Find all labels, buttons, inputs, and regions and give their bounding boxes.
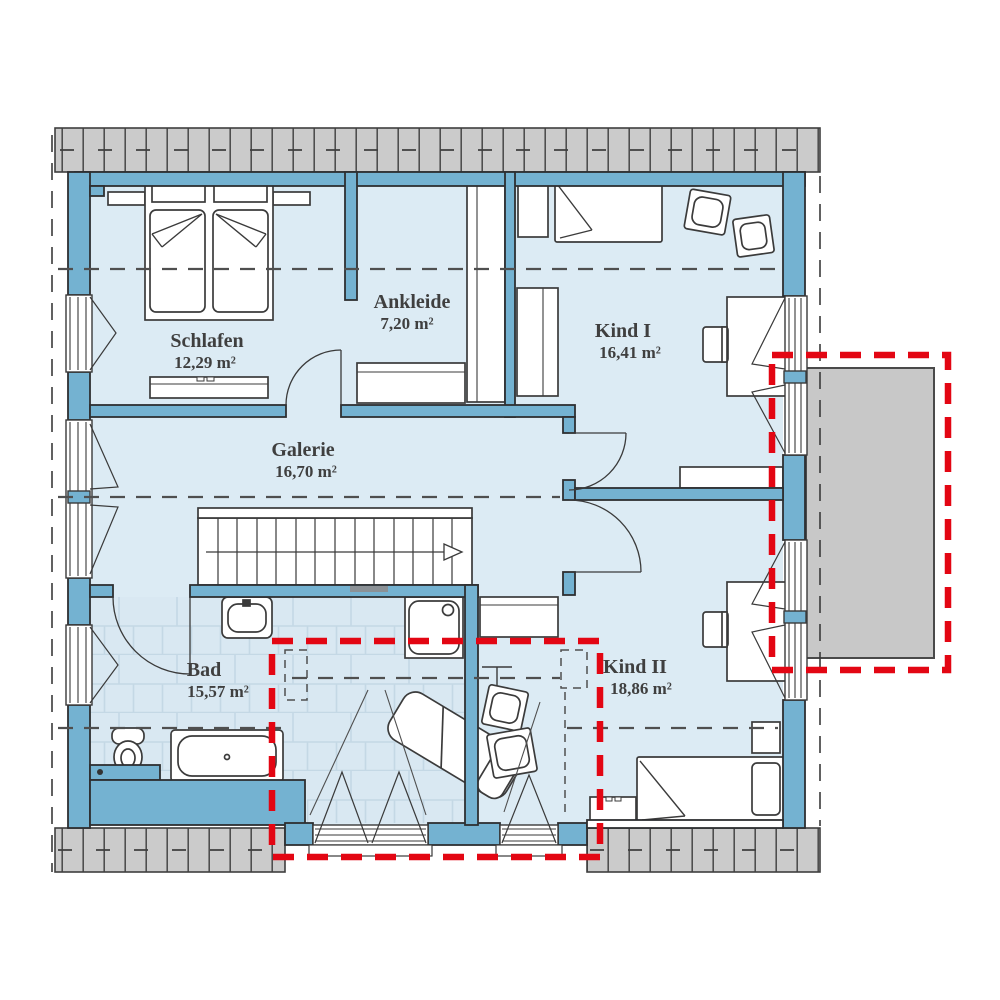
wall-bad-kind2 [465, 585, 478, 825]
wall-exterior-left [68, 172, 90, 295]
balcony-option-area [806, 368, 934, 658]
wall-exterior-top [75, 172, 805, 186]
wall-knee-bottom-right [587, 820, 783, 828]
wall-pier-corner [90, 186, 104, 196]
wall-exterior-left [68, 578, 90, 625]
floor-plan-drawing: Schlafen 12,29 m² Ankleide 7,20 m² Kind … [0, 0, 1000, 1000]
sideboard-icon [680, 467, 783, 488]
cabinet-icon [480, 597, 558, 637]
shower-icon [405, 597, 463, 658]
room-area-galerie: 16,70 m² [275, 462, 337, 481]
room-label-ankleide: Ankleide [374, 291, 451, 313]
window-mullion [784, 371, 806, 383]
single-bed-icon [637, 757, 785, 821]
wall-galerie-bad [190, 585, 478, 597]
nightstand-icon [273, 192, 310, 205]
room-area-kind2: 18,86 m² [610, 679, 672, 698]
room-label-kind2: Kind II [603, 656, 667, 678]
wall-dormer [285, 823, 313, 845]
sink-icon [222, 597, 272, 638]
wall-pier [563, 572, 575, 595]
room-label-schlafen: Schlafen [170, 330, 243, 352]
cushion-icon [487, 728, 538, 779]
wall-ankleide-galerie [341, 405, 575, 417]
wall-exterior-right [783, 700, 805, 828]
wall-kind1-kind2 [575, 488, 783, 500]
window-mullion [784, 611, 806, 623]
room-area-ankleide: 7,20 m² [380, 314, 433, 333]
nightstand-icon [108, 192, 145, 205]
wall-dormer [558, 823, 587, 845]
threshold [350, 586, 388, 592]
room-area-schlafen: 12,29 m² [174, 353, 236, 372]
wall-exterior-right [783, 172, 805, 296]
wall-exterior-left [68, 705, 90, 828]
wall-galerie-bad [90, 585, 113, 597]
cushion-icon [733, 215, 775, 258]
bathtub-icon [171, 730, 283, 782]
roof-hatch-band-top [55, 128, 820, 172]
room-label-bad: Bad [187, 659, 221, 681]
wall-schlafen-ankleide [345, 172, 357, 300]
wall-dormer [428, 823, 500, 845]
cushion-icon [684, 189, 731, 236]
chair-icon [703, 327, 728, 362]
drain-dot [97, 769, 103, 775]
nightstand-icon [752, 722, 780, 753]
wall-ankleide-kind1 [505, 172, 515, 417]
cushion-icon [481, 684, 528, 731]
mattress [213, 210, 268, 312]
wall-schlafen-galerie [90, 405, 286, 417]
wardrobe-icon [517, 288, 558, 396]
stairs [198, 508, 472, 585]
mattress [150, 210, 205, 312]
floor-plan-page: Schlafen 12,29 m² Ankleide 7,20 m² Kind … [0, 0, 1000, 1000]
wall-pier [563, 417, 575, 433]
room-label-galerie: Galerie [271, 439, 334, 461]
room-area-bad: 15,57 m² [187, 682, 249, 701]
wall-exterior-right [783, 455, 805, 540]
dresser-icon [150, 377, 268, 398]
room-label-kind1: Kind I [595, 320, 651, 342]
pillow [752, 763, 780, 815]
room-area-kind1: 16,41 m² [599, 343, 661, 362]
stair-handrail [198, 508, 472, 518]
wall-exterior-left [68, 372, 90, 420]
chair-icon [703, 612, 728, 647]
